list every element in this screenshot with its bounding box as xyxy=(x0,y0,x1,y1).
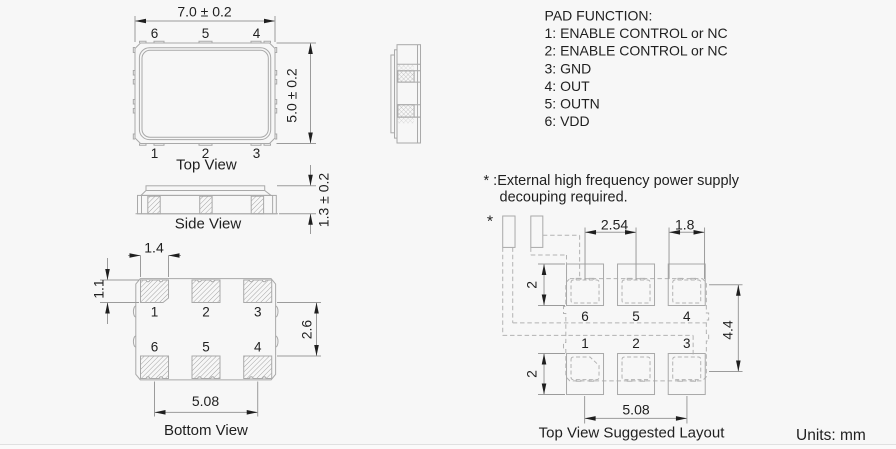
svg-text:2.6: 2.6 xyxy=(299,320,315,340)
svg-text:4: 4 xyxy=(253,26,261,41)
svg-text:6: 6 xyxy=(581,309,589,324)
svg-text:4: 4 xyxy=(683,309,691,324)
svg-text:1.4: 1.4 xyxy=(144,240,164,256)
svg-text:2.54: 2.54 xyxy=(601,216,628,232)
svg-text:5.0 ± 0.2: 5.0 ± 0.2 xyxy=(284,68,300,123)
svg-text:1: 1 xyxy=(151,305,159,320)
svg-text:4: 4 xyxy=(254,340,262,355)
svg-text:5: 5 xyxy=(202,340,210,355)
svg-text:3: 3 xyxy=(253,146,261,161)
svg-text:1.8: 1.8 xyxy=(675,216,695,232)
svg-text:2: ENABLE CONTROL or NC: 2: ENABLE CONTROL or NC xyxy=(545,43,728,59)
svg-text:2: 2 xyxy=(524,281,540,289)
svg-text:* :External high frequency pow: * :External high frequency power supply xyxy=(484,173,740,189)
svg-text:5: 5 xyxy=(632,309,640,324)
svg-text:decouping required.: decouping required. xyxy=(500,190,628,206)
svg-text:6: 6 xyxy=(151,26,159,41)
svg-text:*: * xyxy=(487,214,493,231)
svg-text:3: GND: 3: GND xyxy=(545,60,592,76)
svg-text:Bottom View: Bottom View xyxy=(164,422,248,439)
svg-text:1: ENABLE CONTROL or NC: 1: ENABLE CONTROL or NC xyxy=(545,25,728,41)
svg-text:4: OUT: 4: OUT xyxy=(545,78,591,94)
svg-text:Side View: Side View xyxy=(175,216,242,233)
svg-text:6: VDD: 6: VDD xyxy=(545,113,590,129)
svg-text:PAD FUNCTION:: PAD FUNCTION: xyxy=(545,8,653,24)
svg-text:1.1: 1.1 xyxy=(91,279,107,299)
svg-text:2: 2 xyxy=(202,305,210,320)
svg-text:1: 1 xyxy=(581,336,589,351)
svg-text:3: 3 xyxy=(254,305,262,320)
svg-text:5.08: 5.08 xyxy=(622,402,649,418)
svg-text:Top View Suggested Layout: Top View Suggested Layout xyxy=(539,425,726,442)
svg-text:5: 5 xyxy=(202,26,210,41)
svg-text:3: 3 xyxy=(683,336,691,351)
svg-text:Units: mm: Units: mm xyxy=(796,427,866,444)
svg-text:5: OUTN: 5: OUTN xyxy=(545,96,600,112)
svg-text:2: 2 xyxy=(524,370,540,378)
svg-text:7.0 ± 0.2: 7.0 ± 0.2 xyxy=(177,4,232,20)
svg-text:2: 2 xyxy=(632,336,640,351)
svg-text:1: 1 xyxy=(151,146,159,161)
svg-text:1.3 ± 0.2: 1.3 ± 0.2 xyxy=(316,173,332,228)
svg-text:Top View: Top View xyxy=(176,157,237,174)
svg-text:6: 6 xyxy=(151,340,159,355)
svg-text:5.08: 5.08 xyxy=(192,393,219,409)
svg-text:4.4: 4.4 xyxy=(720,320,736,340)
